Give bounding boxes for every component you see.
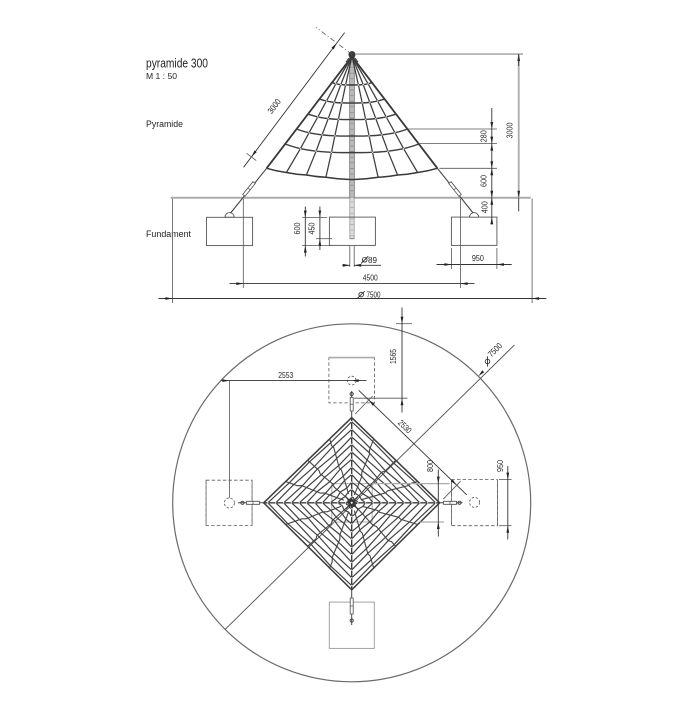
svg-text:800: 800 — [425, 460, 435, 472]
svg-text:280: 280 — [478, 130, 488, 142]
svg-text:600: 600 — [478, 175, 488, 187]
svg-text:Pyramide: Pyramide — [146, 119, 183, 129]
svg-text:3000: 3000 — [504, 122, 514, 138]
svg-text:450: 450 — [307, 222, 317, 234]
svg-text:pyramide 300: pyramide 300 — [146, 57, 208, 71]
svg-text:7500: 7500 — [367, 290, 381, 300]
svg-text:2553: 2553 — [278, 370, 293, 380]
svg-text:1565: 1565 — [388, 349, 398, 364]
svg-text:600: 600 — [292, 222, 302, 234]
svg-text:950: 950 — [495, 460, 505, 472]
svg-text:950: 950 — [472, 253, 484, 263]
svg-text:M 1 : 50: M 1 : 50 — [146, 72, 177, 81]
svg-text:89: 89 — [368, 255, 377, 265]
svg-text:4500: 4500 — [363, 272, 378, 282]
svg-text:400: 400 — [480, 201, 490, 213]
svg-text:Fundament: Fundament — [146, 229, 191, 239]
